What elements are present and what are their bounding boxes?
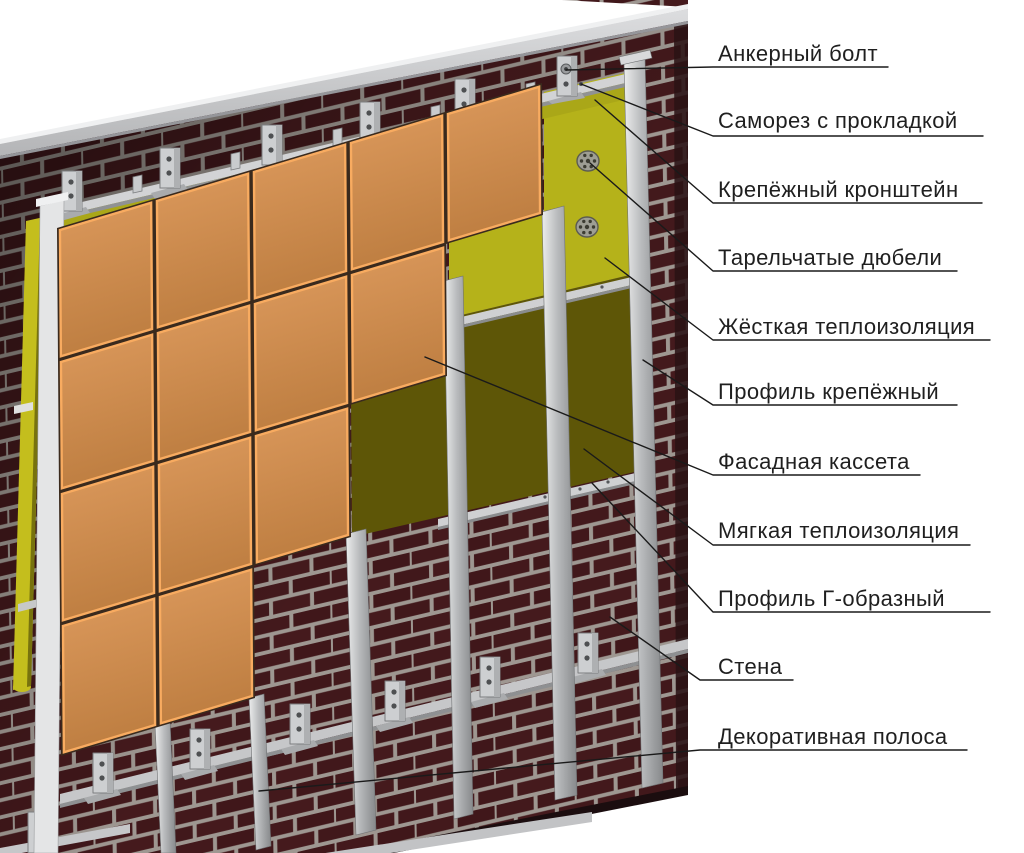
cassette-tile [62, 467, 154, 620]
label-decorative-strip: Декоративная полоса [718, 724, 948, 749]
plate-dowel [576, 217, 598, 237]
label-facade-cassette: Фасадная кассета [718, 449, 910, 474]
cassette-tile [157, 174, 249, 327]
label-rigid-insulation: Жёсткая теплоизоляция [718, 314, 975, 339]
cassette-tile [352, 248, 444, 401]
cassette-tile [254, 145, 346, 298]
cassette-tile [160, 570, 252, 723]
cassette-tile [256, 409, 348, 562]
facade-diagram-page: Анкерный болт Саморез с прокладкой Крепё… [0, 0, 1024, 853]
cassette-tile [60, 203, 152, 356]
cassette-tile [63, 599, 155, 752]
wall-side-face [674, 12, 688, 790]
label-screw-gasket: Саморез с прокладкой [718, 108, 958, 133]
label-mounting-profile: Профиль крепёжный [718, 379, 939, 404]
cassette-tile [159, 438, 251, 591]
facade-diagram: Анкерный болт Саморез с прокладкой Крепё… [0, 0, 1024, 853]
cassette-tile [351, 116, 443, 269]
cassette-tile [61, 335, 153, 488]
label-soft-insulation: Мягкая теплоизоляция [718, 518, 959, 543]
label-anchor-bolt: Анкерный болт [718, 41, 878, 66]
label-mounting-bracket: Крепёжный кронштейн [718, 177, 959, 202]
cassette-tile [255, 277, 347, 430]
cassette-tile [448, 87, 540, 240]
anchor-bolt [561, 64, 571, 74]
labels: Анкерный болт Саморез с прокладкой Крепё… [718, 41, 975, 749]
label-l-profile: Профиль Г-образный [718, 586, 945, 611]
label-wall: Стена [718, 654, 783, 679]
brick-wall-top-wedge [562, 0, 688, 7]
cassette-tile [158, 306, 250, 459]
label-plate-dowels: Тарельчатые дюбели [718, 245, 942, 270]
